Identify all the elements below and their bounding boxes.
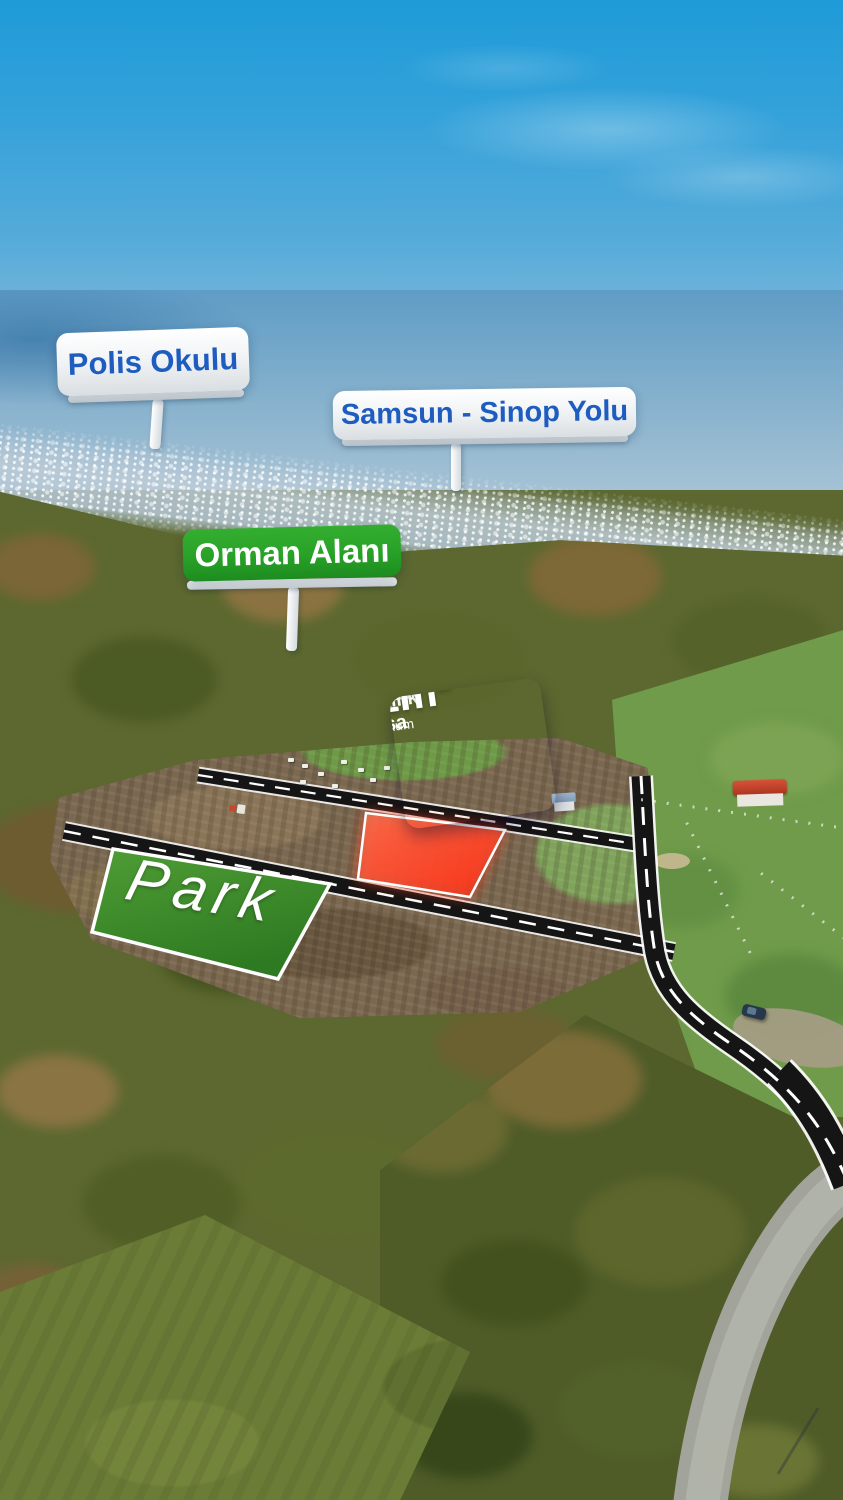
aerial-listing-photo: Park Polis Okulu Samsun - Sinop Yolu bbox=[0, 0, 843, 1500]
sign-label: Samsun - Sinop Yolu bbox=[341, 395, 629, 432]
beehive bbox=[358, 768, 364, 772]
beehive bbox=[302, 764, 308, 768]
beehive bbox=[370, 778, 376, 782]
red-roof-house bbox=[733, 779, 788, 809]
dirt-patch bbox=[654, 853, 690, 869]
tractor-cab bbox=[229, 805, 237, 812]
sign-post bbox=[286, 587, 299, 651]
sign-board: Orman Alanı bbox=[182, 524, 401, 582]
beehive bbox=[332, 784, 338, 788]
tractor-implement bbox=[237, 804, 246, 814]
sign-board: Samsun - Sinop Yolu bbox=[333, 387, 637, 440]
sign-label: Polis Okulu bbox=[67, 341, 239, 383]
listing-sign: Samsun / Atakum Satılık Arsa 831m² bbox=[388, 677, 557, 830]
beehives bbox=[286, 752, 396, 792]
hut-wall bbox=[554, 801, 575, 811]
beehive bbox=[384, 766, 390, 770]
pole-shadow bbox=[778, 1408, 818, 1474]
sign-post bbox=[451, 443, 461, 491]
tractor bbox=[228, 803, 245, 816]
car-windshield bbox=[746, 1006, 756, 1015]
beehive bbox=[300, 780, 306, 784]
beehive bbox=[288, 758, 294, 762]
beehive bbox=[318, 772, 324, 776]
sign-board: Polis Okulu bbox=[56, 327, 250, 397]
house-wall bbox=[737, 793, 783, 807]
beehive bbox=[341, 760, 347, 764]
sign-label: Orman Alanı bbox=[194, 531, 390, 574]
road-vertical bbox=[641, 776, 843, 1184]
